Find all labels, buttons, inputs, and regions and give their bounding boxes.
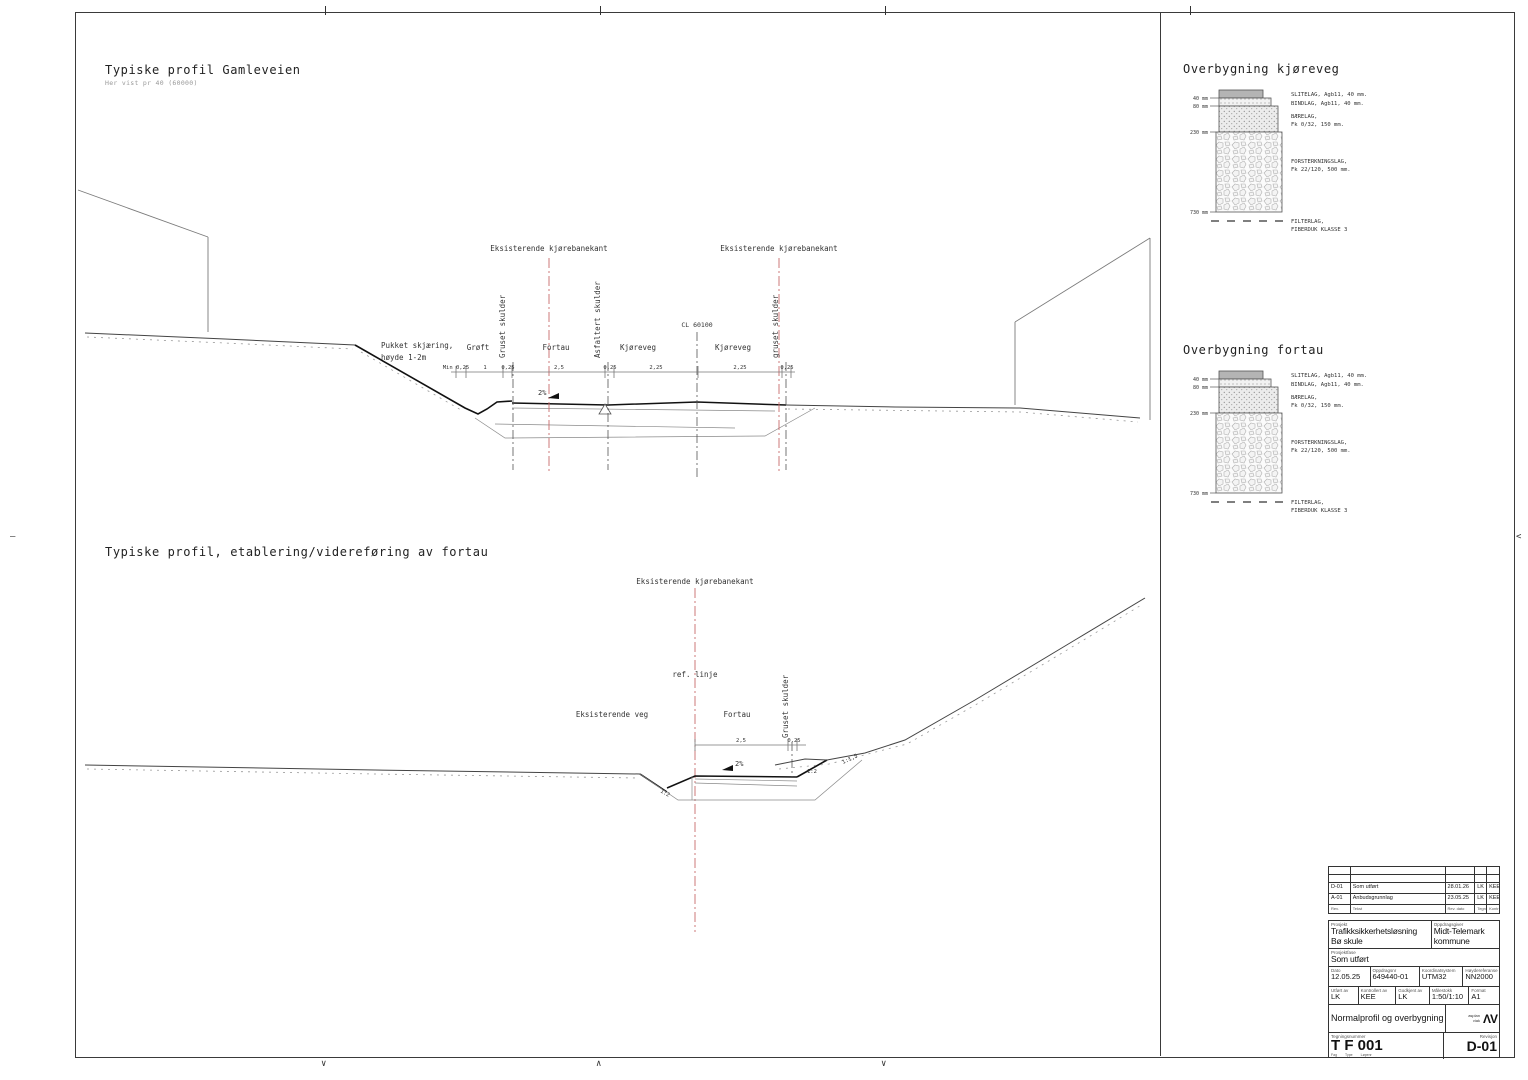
rev-header-dato: Rev. dato [1446, 905, 1476, 913]
label-asfaltert: Asfaltert skulder [593, 281, 602, 358]
slitelag-label: SLITELAG, Agb11, 40 mm. [1291, 92, 1367, 98]
filterlag-label-1: FILTERLAG, [1291, 500, 1324, 506]
rev-text: Som utført [1351, 883, 1446, 893]
rev-id: D-01 [1329, 883, 1351, 893]
rev-header-tegn: Tegn [1475, 905, 1487, 913]
rev-text: Anbudsgrunnlag [1351, 894, 1446, 904]
label-pukket-1: Pukket skjæring, [381, 341, 453, 350]
profile2-drawing: Eksisterende kjørebanekant ref. linje 1:… [75, 560, 1160, 940]
rev-kontr: KEE [1487, 883, 1499, 893]
label-kjoreveg-right: Kjøreveg [715, 343, 751, 352]
slope-left-label: 1:2 [659, 789, 671, 799]
title-block: Prosjekt Trafikksikkerhetsløsning Bø sku… [1328, 920, 1500, 1058]
existing-edge-label-left: Eksisterende kjørebanekant [490, 244, 607, 253]
fase-value: Som utført [1331, 955, 1497, 965]
revisjon-value: D-01 [1446, 1039, 1497, 1053]
baerelag-label-1: BÆRELAG, [1291, 395, 1318, 401]
dim-40: 40 mm [1193, 96, 1208, 102]
fold-mark-top-1 [325, 6, 326, 15]
rev-kontr: KEE [1487, 894, 1499, 904]
overbygning-kjoreveg-title: Overbygning kjøreveg [1183, 62, 1340, 76]
rev-header-rev: Rev. [1329, 905, 1351, 913]
dim-5: 2,25 [649, 365, 662, 371]
dim-1: 0,25 [787, 738, 800, 744]
bindlag-label: BINDLAG, Agb11, 40 mm. [1291, 382, 1364, 388]
fold-mark-bottom-2: ∧ [596, 1059, 601, 1069]
fold-mark-top-4 [1190, 6, 1191, 15]
section2-title: Typiske profil, etablering/videreføring … [105, 545, 488, 559]
dim-3: 2,5 [554, 365, 564, 371]
excavation-outline [475, 408, 815, 438]
layer-stack [1216, 90, 1282, 212]
label-cl: CL 60100 [681, 321, 712, 329]
fold-mark-right: < [1516, 532, 1521, 542]
malestokk-value: 1:50/1:10 [1432, 993, 1467, 1002]
left-structure-outline [78, 190, 208, 332]
utfort-value: LK [1331, 993, 1356, 1002]
fold-mark-top-3 [885, 6, 886, 15]
excavation-outline [640, 760, 862, 800]
dim-7: 0,25 [780, 365, 793, 371]
dim-4: 0,25 [603, 365, 616, 371]
bindlag-label: BINDLAG, Agb11, 40 mm. [1291, 101, 1364, 107]
rev-tegn: LK [1475, 883, 1487, 893]
dim-0: 2,5 [736, 738, 746, 744]
slope-label: 2% [735, 760, 744, 768]
hoydereferanse-value: NN2000 [1465, 973, 1497, 982]
rev-date: 28.01.26 [1446, 883, 1476, 893]
dim-80: 80 mm [1193, 104, 1208, 110]
slope-mid-label: 1:2 [807, 769, 817, 775]
dim-80: 80 mm [1193, 385, 1208, 391]
label-kjoreveg-left: Kjøreveg [620, 343, 656, 352]
godkjent-value: LK [1398, 993, 1427, 1002]
label-fortau: Fortau [723, 710, 750, 719]
label-gruset-left: Gruset skulder [498, 294, 507, 358]
kontrollert-value: KEE [1361, 993, 1394, 1002]
panel-divider [1160, 12, 1161, 1056]
rev-header-kontr: Kontr [1487, 905, 1499, 913]
dim-2: 0,25 [501, 365, 514, 371]
asplan-viak-logo: ΛV [1483, 1012, 1497, 1026]
axis-lines [513, 332, 786, 478]
revision-row: D-01 Som utført 28.01.26 LK KEE [1329, 883, 1499, 894]
label-pukket-2: høyde 1-2m [381, 353, 427, 362]
oppdragsgiver-2: kommune [1434, 937, 1497, 947]
right-structure-outline [1015, 238, 1150, 420]
existing-edge-label-right: Eksisterende kjørebanekant [720, 244, 837, 253]
label-gruset-right: gruset skulder [771, 294, 780, 358]
drawing-sheet: ∨ ∧ ∨ – < Typiske profil Gamleveien Her … [0, 0, 1528, 1080]
oppdragsnr-value: 649440-01 [1373, 973, 1417, 982]
slope-right-label: 1:1,5 [841, 753, 859, 765]
label-gruset: Gruset skulder [781, 674, 790, 738]
slitelag-label: SLITELAG, Agb11, 40 mm. [1291, 373, 1367, 379]
format-value: A1 [1471, 993, 1497, 1002]
baerelag-label-1: BÆRELAG, [1291, 114, 1318, 120]
forsterkning-label-2: Fk 22/120, 500 mm. [1291, 167, 1351, 173]
baerelag-label-2: Fk 0/32, 150 mm. [1291, 403, 1344, 409]
rev-header-tekst: Tekst [1351, 905, 1446, 913]
fold-mark-left: – [10, 532, 15, 542]
rev-tegn: LK [1475, 894, 1487, 904]
fold-mark-bottom-3: ∨ [881, 1059, 886, 1069]
overbygning-kjoreveg-diagram: 40 mm 80 mm 230 mm 730 mm SLITELAG, Agb1… [1183, 85, 1513, 255]
slope-arrow [548, 393, 559, 399]
forsterkning-label-1: FORSTERKNINGSLAG, [1291, 440, 1347, 446]
rev-date: 23.05.25 [1446, 894, 1476, 904]
section1-subtitle: Her vist pr 40 (60000) [105, 79, 198, 87]
profile1-drawing: Eksisterende kjørebanekant Eksisterende … [75, 180, 1160, 500]
rev-id: A-01 [1329, 894, 1351, 904]
forsterkning-label-1: FORSTERKNINGSLAG, [1291, 159, 1347, 165]
overbygning-fortau-title: Overbygning fortau [1183, 343, 1324, 357]
logo-text: asplanviak [1468, 1014, 1480, 1023]
revision-table: D-01 Som utført 28.01.26 LK KEE A-01 Anb… [1328, 866, 1500, 914]
dim-1: 1 [483, 365, 486, 371]
type-label: Type [1345, 1053, 1353, 1057]
baerelag-label-2: Fk 0/32, 150 mm. [1291, 122, 1344, 128]
dim-0: Min 0,25 [443, 365, 470, 371]
overbygning-fortau-diagram: 40 mm 80 mm 230 mm 730 mm SLITELAG, Agb1… [1183, 366, 1513, 536]
dim-6: 2,25 [733, 365, 746, 371]
label-fortau: Fortau [542, 343, 569, 352]
lopenr-label: Løpenr [1361, 1053, 1372, 1057]
section1-title: Typiske profil Gamleveien [105, 63, 301, 77]
tegningsnavn: Normalprofil og overbygning [1331, 1014, 1444, 1023]
dim-40: 40 mm [1193, 377, 1208, 383]
terrain-line [85, 333, 1140, 422]
dim-730: 730 mm [1190, 491, 1208, 497]
slope-label: 2% [538, 389, 547, 397]
filterlag-label-2: FIBERDUK KLASSE 3 [1291, 508, 1347, 514]
fold-mark-bottom-1: ∨ [321, 1059, 326, 1069]
tegningsnummer-value: T F 001 [1331, 1039, 1441, 1053]
fag-label: Fag [1331, 1053, 1337, 1057]
fold-mark-top-2 [600, 6, 601, 15]
existing-edge-label: Eksisterende kjørebanekant [636, 577, 753, 586]
prosjekt-name-2: Bø skule [1331, 937, 1429, 947]
slope-arrow [722, 765, 733, 771]
revision-row: A-01 Anbudsgrunnlag 23.05.25 LK KEE [1329, 894, 1499, 905]
label-eksisterende-veg: Eksisterende veg [576, 710, 648, 719]
forsterkning-label-2: Fk 22/120, 500 mm. [1291, 448, 1351, 454]
filterlag-label-2: FIBERDUK KLASSE 3 [1291, 227, 1347, 233]
ref-line-label: ref. linje [672, 670, 718, 679]
filterlag-label-1: FILTERLAG, [1291, 219, 1324, 225]
layer-stack [1216, 371, 1282, 493]
revision-header-row: Rev. Tekst Rev. dato Tegn Kontr [1329, 905, 1499, 913]
dato-value: 12.05.25 [1331, 973, 1368, 982]
dim-730: 730 mm [1190, 210, 1208, 216]
koordinatsystem-value: UTM32 [1422, 973, 1460, 982]
dim-230: 230 mm [1190, 411, 1208, 417]
dim-230: 230 mm [1190, 130, 1208, 136]
label-groft: Grøft [467, 343, 490, 352]
terrain-line [85, 598, 1145, 792]
